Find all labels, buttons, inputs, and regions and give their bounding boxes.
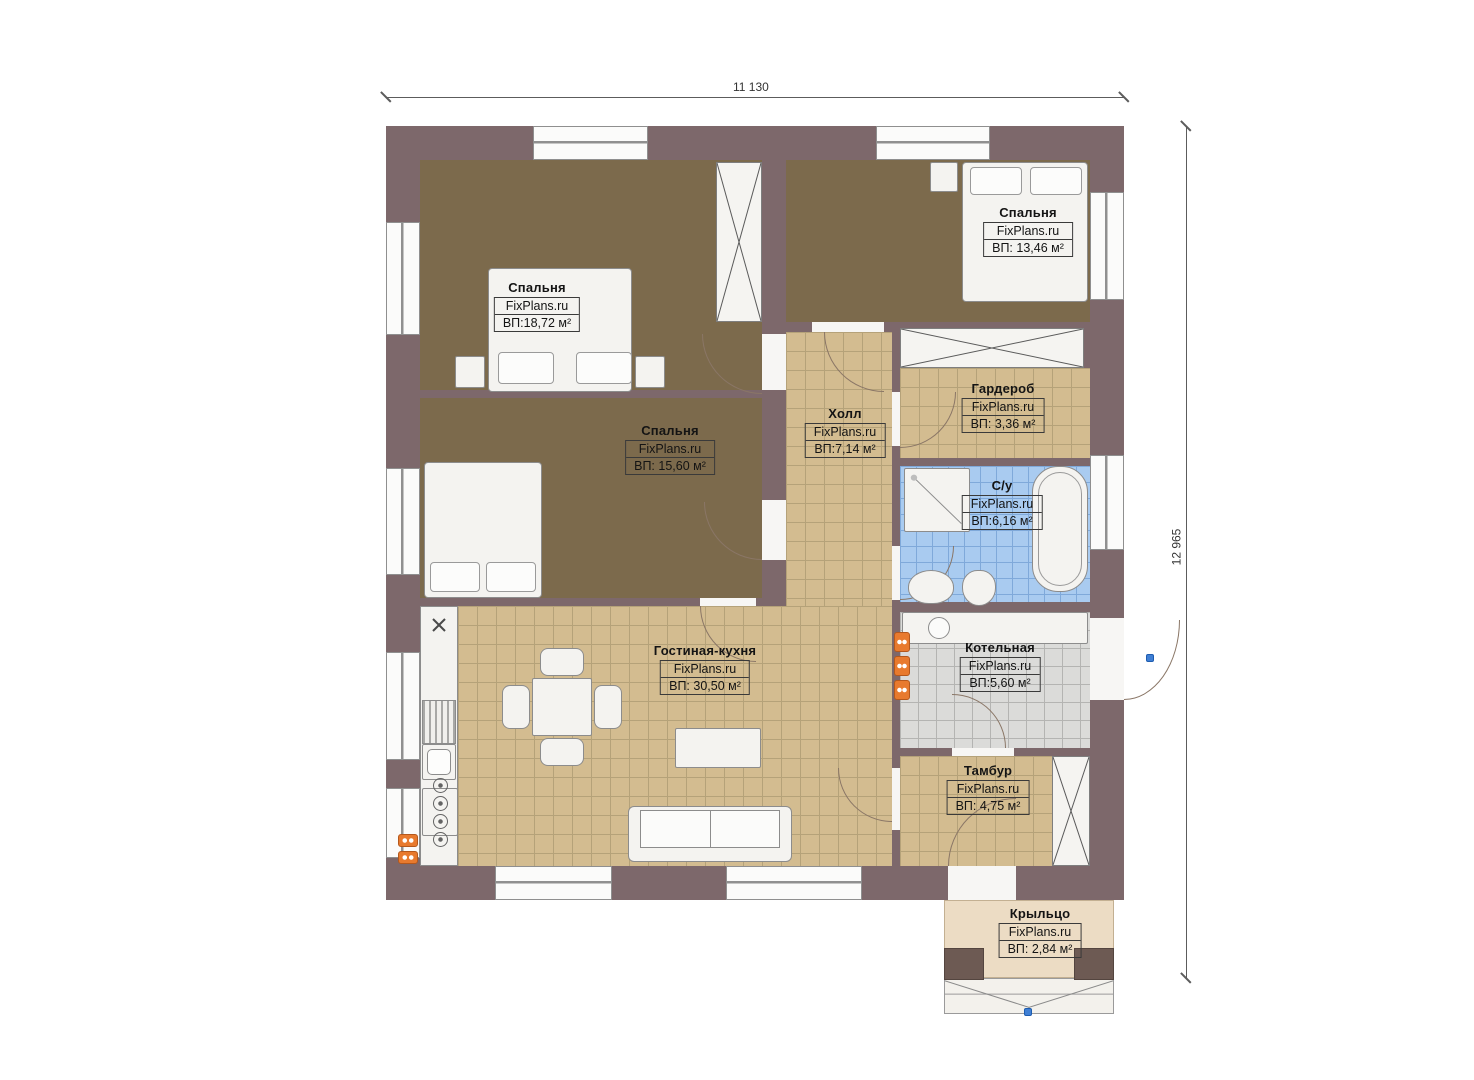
- room-name: Холл: [805, 406, 886, 421]
- shower: [904, 468, 970, 532]
- selection-handle[interactable]: [1146, 654, 1154, 662]
- room-name: Спальня: [983, 205, 1073, 220]
- door-opening-entrance: [948, 866, 1016, 900]
- watermark: FixPlans.ru: [495, 298, 579, 315]
- dining-chair: [540, 648, 584, 676]
- window: [386, 468, 420, 575]
- room-area: ВП:7,14 м²: [806, 441, 885, 457]
- room-label-tambur: Тамбур FixPlans.ruВП: 4,75 м²: [947, 763, 1030, 815]
- watermark: FixPlans.ru: [963, 496, 1042, 513]
- window: [386, 652, 420, 760]
- radiator: [894, 680, 910, 700]
- room-area: ВП: 30,50 м²: [661, 678, 749, 694]
- window: [726, 866, 862, 900]
- dimension-line-right: [1186, 126, 1187, 978]
- bed-pillow: [970, 167, 1022, 195]
- window: [533, 126, 648, 160]
- door-opening-bedroom-1: [762, 334, 786, 390]
- kitchen-sink-bowl: [427, 749, 451, 775]
- watermark: FixPlans.ru: [961, 658, 1040, 675]
- room-label-bedroom-3: Спальня FixPlans.ruВП: 15,60 м²: [625, 423, 715, 475]
- door-opening-bathroom: [892, 546, 900, 600]
- wardrobe-closet: [900, 328, 1084, 368]
- stove-burner-icon: [433, 832, 448, 847]
- watermark: FixPlans.ru: [984, 223, 1072, 240]
- dining-table: [532, 678, 592, 736]
- dining-chair: [594, 685, 622, 729]
- bed-pillow: [430, 562, 480, 592]
- dining-chair: [540, 738, 584, 766]
- dimension-label-height: 12 965: [1169, 529, 1183, 566]
- door-opening-bedroom-3: [762, 500, 786, 560]
- watermark: FixPlans.ru: [626, 441, 714, 458]
- bed-pillow: [1030, 167, 1082, 195]
- floor-plan-canvas: 11 130 12 965: [0, 0, 1474, 1080]
- bed-pillow: [486, 562, 536, 592]
- room-label-bedroom-2: Спальня FixPlans.ruВП: 13,46 м²: [983, 205, 1073, 257]
- wardrobe-closet: [716, 162, 762, 322]
- radiator: [894, 632, 910, 652]
- room-area: ВП:6,16 м²: [963, 513, 1042, 529]
- room-area: ВП: 2,84 м²: [1000, 941, 1081, 957]
- washbasin: [908, 570, 954, 604]
- bed-pillow: [576, 352, 632, 384]
- door-opening-bedroom-2: [812, 322, 884, 332]
- passage-living: [700, 598, 756, 606]
- door-opening-wardrobe: [892, 392, 900, 446]
- window: [495, 866, 612, 900]
- watermark: FixPlans.ru: [806, 424, 885, 441]
- porch-post: [944, 948, 984, 980]
- room-name: Крыльцо: [999, 906, 1082, 921]
- window: [386, 222, 420, 335]
- tambur-closet: [1052, 756, 1090, 866]
- nightstand: [635, 356, 665, 388]
- room-area: ВП: 4,75 м²: [948, 798, 1029, 814]
- wall: [900, 458, 1090, 466]
- selection-handle[interactable]: [1024, 1008, 1032, 1016]
- room-area: ВП:18,72 м²: [495, 315, 579, 331]
- toilet: [962, 570, 996, 606]
- dining-chair: [502, 685, 530, 729]
- stove-burner-icon: [433, 796, 448, 811]
- room-label-boiler: Котельная FixPlans.ruВП:5,60 м²: [960, 640, 1041, 692]
- radiator: [398, 834, 418, 847]
- room-label-hall: Холл FixPlans.ruВП:7,14 м²: [805, 406, 886, 458]
- window: [1090, 455, 1124, 550]
- coffee-table: [675, 728, 761, 768]
- watermark: FixPlans.ru: [1000, 924, 1081, 941]
- bathtub-basin: [1038, 472, 1082, 586]
- bed-pillow: [498, 352, 554, 384]
- room-area: ВП: 15,60 м²: [626, 458, 714, 474]
- radiator: [398, 851, 418, 864]
- stove-burner-icon: [433, 778, 448, 793]
- watermark: FixPlans.ru: [661, 661, 749, 678]
- watermark: FixPlans.ru: [948, 781, 1029, 798]
- stove-burner-icon: [433, 814, 448, 829]
- room-area: ВП: 13,46 м²: [984, 240, 1072, 256]
- boiler-sink: [928, 617, 950, 639]
- room-area: ВП: 3,36 м²: [963, 416, 1044, 432]
- window: [386, 788, 420, 858]
- watermark: FixPlans.ru: [963, 399, 1044, 416]
- door-opening-tambur-living: [892, 768, 900, 830]
- room-label-bathroom: С/у FixPlans.ruВП:6,16 м²: [962, 478, 1043, 530]
- radiator: [894, 656, 910, 676]
- room-label-living: Гостиная-кухня FixPlans.ruВП: 30,50 м²: [654, 643, 756, 695]
- room-name: Гостиная-кухня: [654, 643, 756, 658]
- room-name: Спальня: [625, 423, 715, 438]
- room-area: ВП:5,60 м²: [961, 675, 1040, 691]
- sofa-seat-divider: [710, 810, 711, 848]
- room-name: Котельная: [960, 640, 1041, 655]
- door-opening-boiler-exterior: [1090, 618, 1124, 700]
- room-name: Спальня: [494, 280, 580, 295]
- dimension-line-top: [386, 97, 1124, 98]
- room-label-porch: Крыльцо FixPlans.ruВП: 2,84 м²: [999, 906, 1082, 958]
- nightstand: [455, 356, 485, 388]
- window: [876, 126, 990, 160]
- dishwasher: [422, 700, 456, 744]
- room-label-bedroom-1: Спальня FixPlans.ruВП:18,72 м²: [494, 280, 580, 332]
- nightstand: [930, 162, 958, 192]
- kitchen-hob-icon: [424, 610, 454, 640]
- door-opening-boiler-tambur: [952, 748, 1014, 756]
- room-name: Тамбур: [947, 763, 1030, 778]
- stove: [422, 788, 458, 836]
- room-label-wardrobe: Гардероб FixPlans.ruВП: 3,36 м²: [962, 381, 1045, 433]
- room-name: С/у: [962, 478, 1043, 493]
- room-name: Гардероб: [962, 381, 1045, 396]
- window: [1090, 192, 1124, 300]
- dimension-label-width: 11 130: [733, 80, 769, 94]
